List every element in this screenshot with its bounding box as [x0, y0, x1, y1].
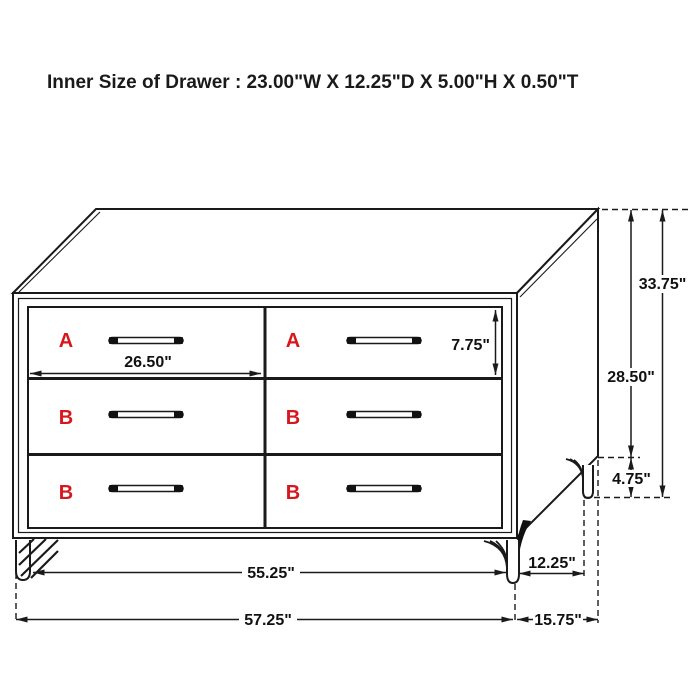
drawer-label-middle-left: B — [59, 407, 73, 429]
dim-label-case-height: 28.50" — [607, 369, 655, 386]
dresser-top-panel — [13, 209, 598, 293]
drawer-handle — [347, 485, 421, 492]
drawer-label-bottom-right: B — [286, 482, 300, 504]
drawer-handle — [347, 337, 421, 344]
dim-label-depth-between-legs: 12.25" — [528, 555, 576, 572]
drawer-handle — [109, 411, 183, 418]
front-right-leg — [507, 540, 519, 583]
dim-label-front-width-between-legs: 55.25" — [247, 565, 295, 582]
dim-label-overall-height: 33.75" — [639, 276, 687, 293]
dim-label-drawer-front-height: 7.75" — [451, 337, 490, 354]
drawer-label-top-left: A — [59, 330, 73, 352]
drawer-handle — [109, 337, 183, 344]
page-title: Inner Size of Drawer : 23.00"W X 12.25"D… — [47, 72, 579, 93]
drawer-handle — [109, 485, 183, 492]
dim-label-leg-height: 4.75" — [612, 471, 651, 488]
back-right-leg — [583, 465, 593, 498]
drawer-label-bottom-left: B — [59, 482, 73, 504]
dimension-diagram-page: Inner Size of Drawer : 23.00"W X 12.25"D… — [0, 0, 700, 700]
drawer-handle — [347, 411, 421, 418]
drawer-label-top-right: A — [286, 330, 300, 352]
dresser-dimension-diagram: Inner Size of Drawer : 23.00"W X 12.25"D… — [0, 0, 700, 700]
drawer-label-middle-right: B — [286, 407, 300, 429]
dim-label-overall-width: 57.25" — [244, 612, 292, 629]
dim-label-drawer-opening-width: 26.50" — [124, 354, 172, 371]
dim-label-overall-depth: 15.75" — [534, 612, 582, 629]
